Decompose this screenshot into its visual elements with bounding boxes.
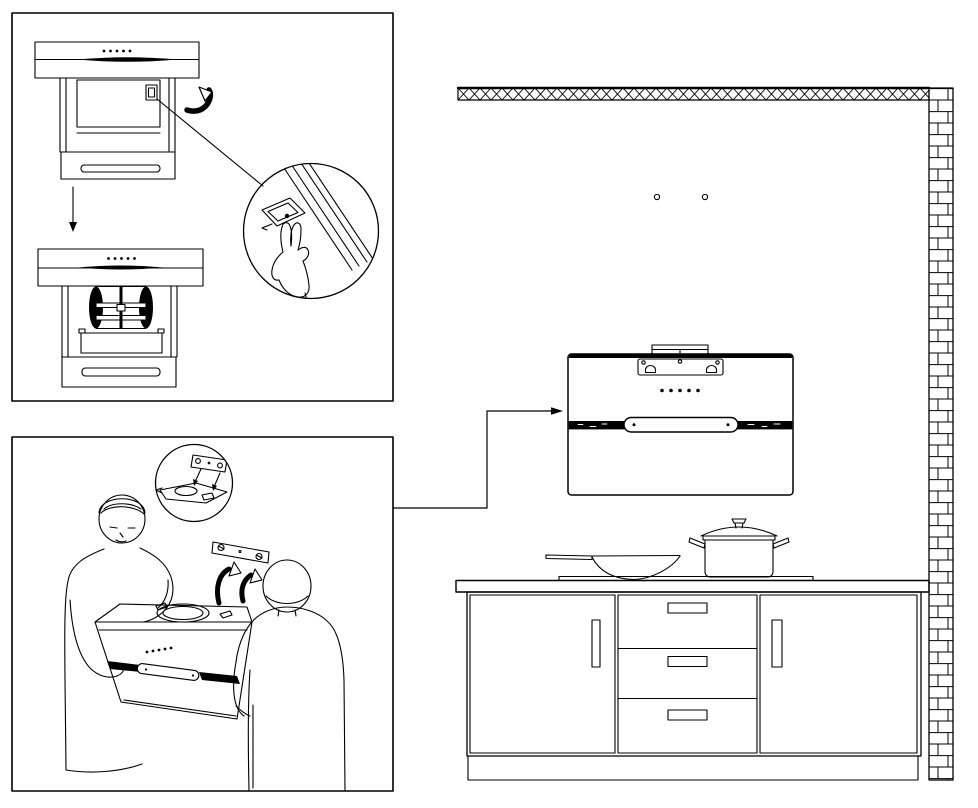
- brick-wall: [929, 88, 953, 780]
- ceiling: [458, 88, 929, 100]
- page-background: [0, 0, 978, 808]
- hood-top-edge: [569, 354, 792, 358]
- installation-diagram: [0, 0, 978, 808]
- manual-page: [0, 0, 978, 808]
- hood-handle: [624, 418, 738, 433]
- blower-drum: [89, 286, 153, 329]
